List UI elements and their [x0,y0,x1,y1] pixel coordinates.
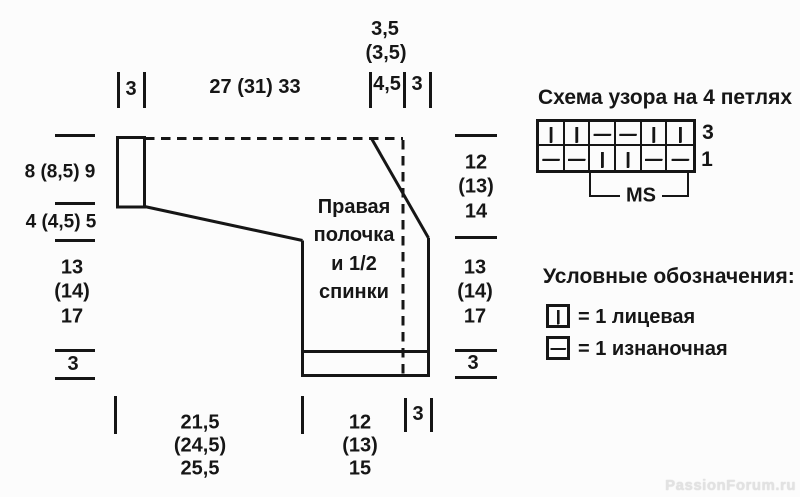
chart-cell: — [565,146,591,170]
bottom-back-width-label: 21,5 (24,5) 25,5 [174,412,226,481]
stitch-symbol: | [600,150,605,167]
chart-row-number-1: 1 [701,148,713,172]
purl-legend-text: = 1 изнаночная [578,338,728,361]
neck-measure-d-label: 3 [411,72,422,96]
left-slope-label: 4 (4,5) 5 [26,210,97,233]
stitch-symbol: — [568,150,585,167]
stitch-chart-title: Схема узора на 4 петлях [538,86,792,110]
measurement-ticks [55,72,497,434]
stitch-symbol: — [645,150,662,167]
stitch-symbol: | [574,125,579,142]
stitch-symbol: | [651,125,656,142]
neck-measure-c-label: 4,5 [373,72,401,96]
chart-cell: | [565,122,591,146]
left-upper-label: 8 (8,5) 9 [25,160,96,183]
bottom-band-label: 3 [412,402,423,426]
neck-measure-b-label: (3,5) [365,41,406,65]
knit-legend-text: = 1 лицевая [578,306,695,329]
right-lower-label: 13 (14) 17 [457,255,493,328]
piece-label: Правая полочка и 1/2 спинки [314,193,395,307]
stitch-symbol: — [594,125,611,142]
chart-cell: — [642,146,668,170]
stitch-symbol: | [678,125,683,142]
chart-cell: | [616,146,642,170]
knit-stitch-icon: | [556,309,560,324]
ms-repeat-label: MS [620,185,662,208]
chart-cell: | [539,122,565,146]
top-body-width-label: 27 (31) 33 [209,75,300,99]
bottom-front-width-label: 12 (13) 15 [342,412,378,481]
shoulder-slope-line [145,207,303,241]
chart-row-number-3: 3 [702,121,714,145]
legend-title: Условные обозначения: [543,265,795,289]
left-side-label: 13 (14) 17 [54,255,90,328]
shoulder-strip-outline [118,138,145,208]
chart-cell: | [667,122,693,146]
neck-measure-a-label: 3,5 [371,17,399,41]
right-rib-label: 3 [467,351,478,375]
chart-cell: — [590,122,616,146]
chart-cell: | [590,146,616,170]
stitch-chart: | | — — | | — — | | — — [536,119,696,173]
purl-symbol-box: — [546,336,570,360]
stitch-symbol: — [672,150,689,167]
chart-cell: — [539,146,565,170]
left-rib-label: 3 [67,352,78,376]
knitting-pattern-page: 3 27 (31) 33 3,5 (3,5) 4,5 3 8 (8,5) 9 4… [0,0,800,497]
stitch-symbol: | [548,125,553,142]
stitch-symbol: — [542,150,559,167]
stitch-symbol: — [619,125,636,142]
chart-cell: — [667,146,693,170]
knit-symbol-box: | [546,304,570,328]
watermark: PassionForum.ru [665,477,796,494]
purl-stitch-icon: — [551,341,566,356]
top-shoulder-width-label: 3 [125,77,136,101]
stitch-symbol: | [625,150,630,167]
chart-cell: | [642,122,668,146]
right-upper-label: 12 (13) 14 [458,150,494,223]
chart-cell: — [616,122,642,146]
